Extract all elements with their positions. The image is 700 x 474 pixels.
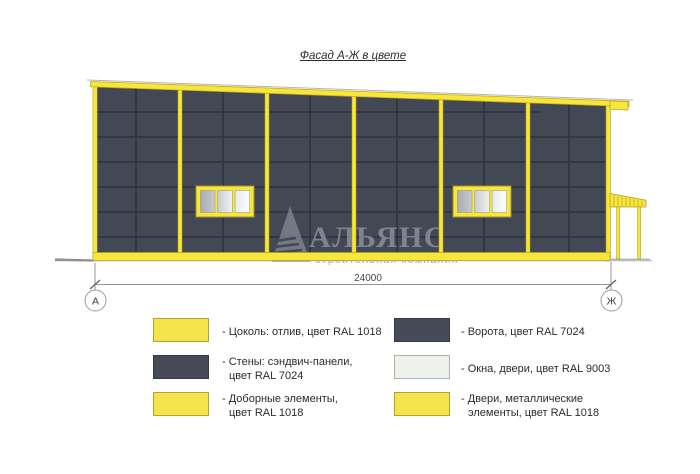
dimension-value: 24000 xyxy=(354,273,382,284)
legend-swatch-trim xyxy=(153,392,209,416)
window-right xyxy=(453,186,511,217)
legend-label-windows: - Окна, двери, цвет RAL 9003 xyxy=(461,362,610,376)
legend-swatch-plinth xyxy=(153,318,209,342)
axis-circle-right: Ж xyxy=(601,290,622,311)
roof-overhang xyxy=(610,101,628,110)
plinth-strip xyxy=(93,253,610,261)
facade-elevation: АЛЬЯНС строительная компания xyxy=(0,0,700,330)
color-legend: - Цоколь: отлив, цвет RAL 1018 - Стены: … xyxy=(0,312,700,474)
axis-circle-left: А xyxy=(85,290,106,311)
axis-right-label: Ж xyxy=(607,295,617,307)
legend-swatch-doors xyxy=(394,392,450,416)
window-left xyxy=(196,186,254,217)
legend-swatch-gates xyxy=(394,318,450,342)
facade-drawing-sheet: Фасад А-Ж в цвете АЛЬЯНС xyxy=(0,0,700,474)
legend-label-walls: - Стены: сэндвич-панели, цвет RAL 7024 xyxy=(222,355,352,383)
canopy-post-right xyxy=(638,207,641,259)
legend-swatch-windows xyxy=(394,355,450,379)
legend-label-plinth: - Цоколь: отлив, цвет RAL 1018 xyxy=(222,325,382,339)
canopy-post-left xyxy=(617,207,620,259)
watermark-title: АЛЬЯНС xyxy=(309,221,447,254)
legend-label-trim: - Доборные элементы, цвет RAL 1018 xyxy=(222,392,338,420)
entrance-canopy xyxy=(610,194,650,260)
legend-label-doors: - Двери, металлические элементы, цвет RA… xyxy=(461,392,599,420)
axis-left-label: А xyxy=(92,295,99,307)
dimension xyxy=(90,262,616,292)
legend-label-gates: - Ворота, цвет RAL 7024 xyxy=(461,325,585,339)
legend-swatch-walls xyxy=(153,355,209,379)
